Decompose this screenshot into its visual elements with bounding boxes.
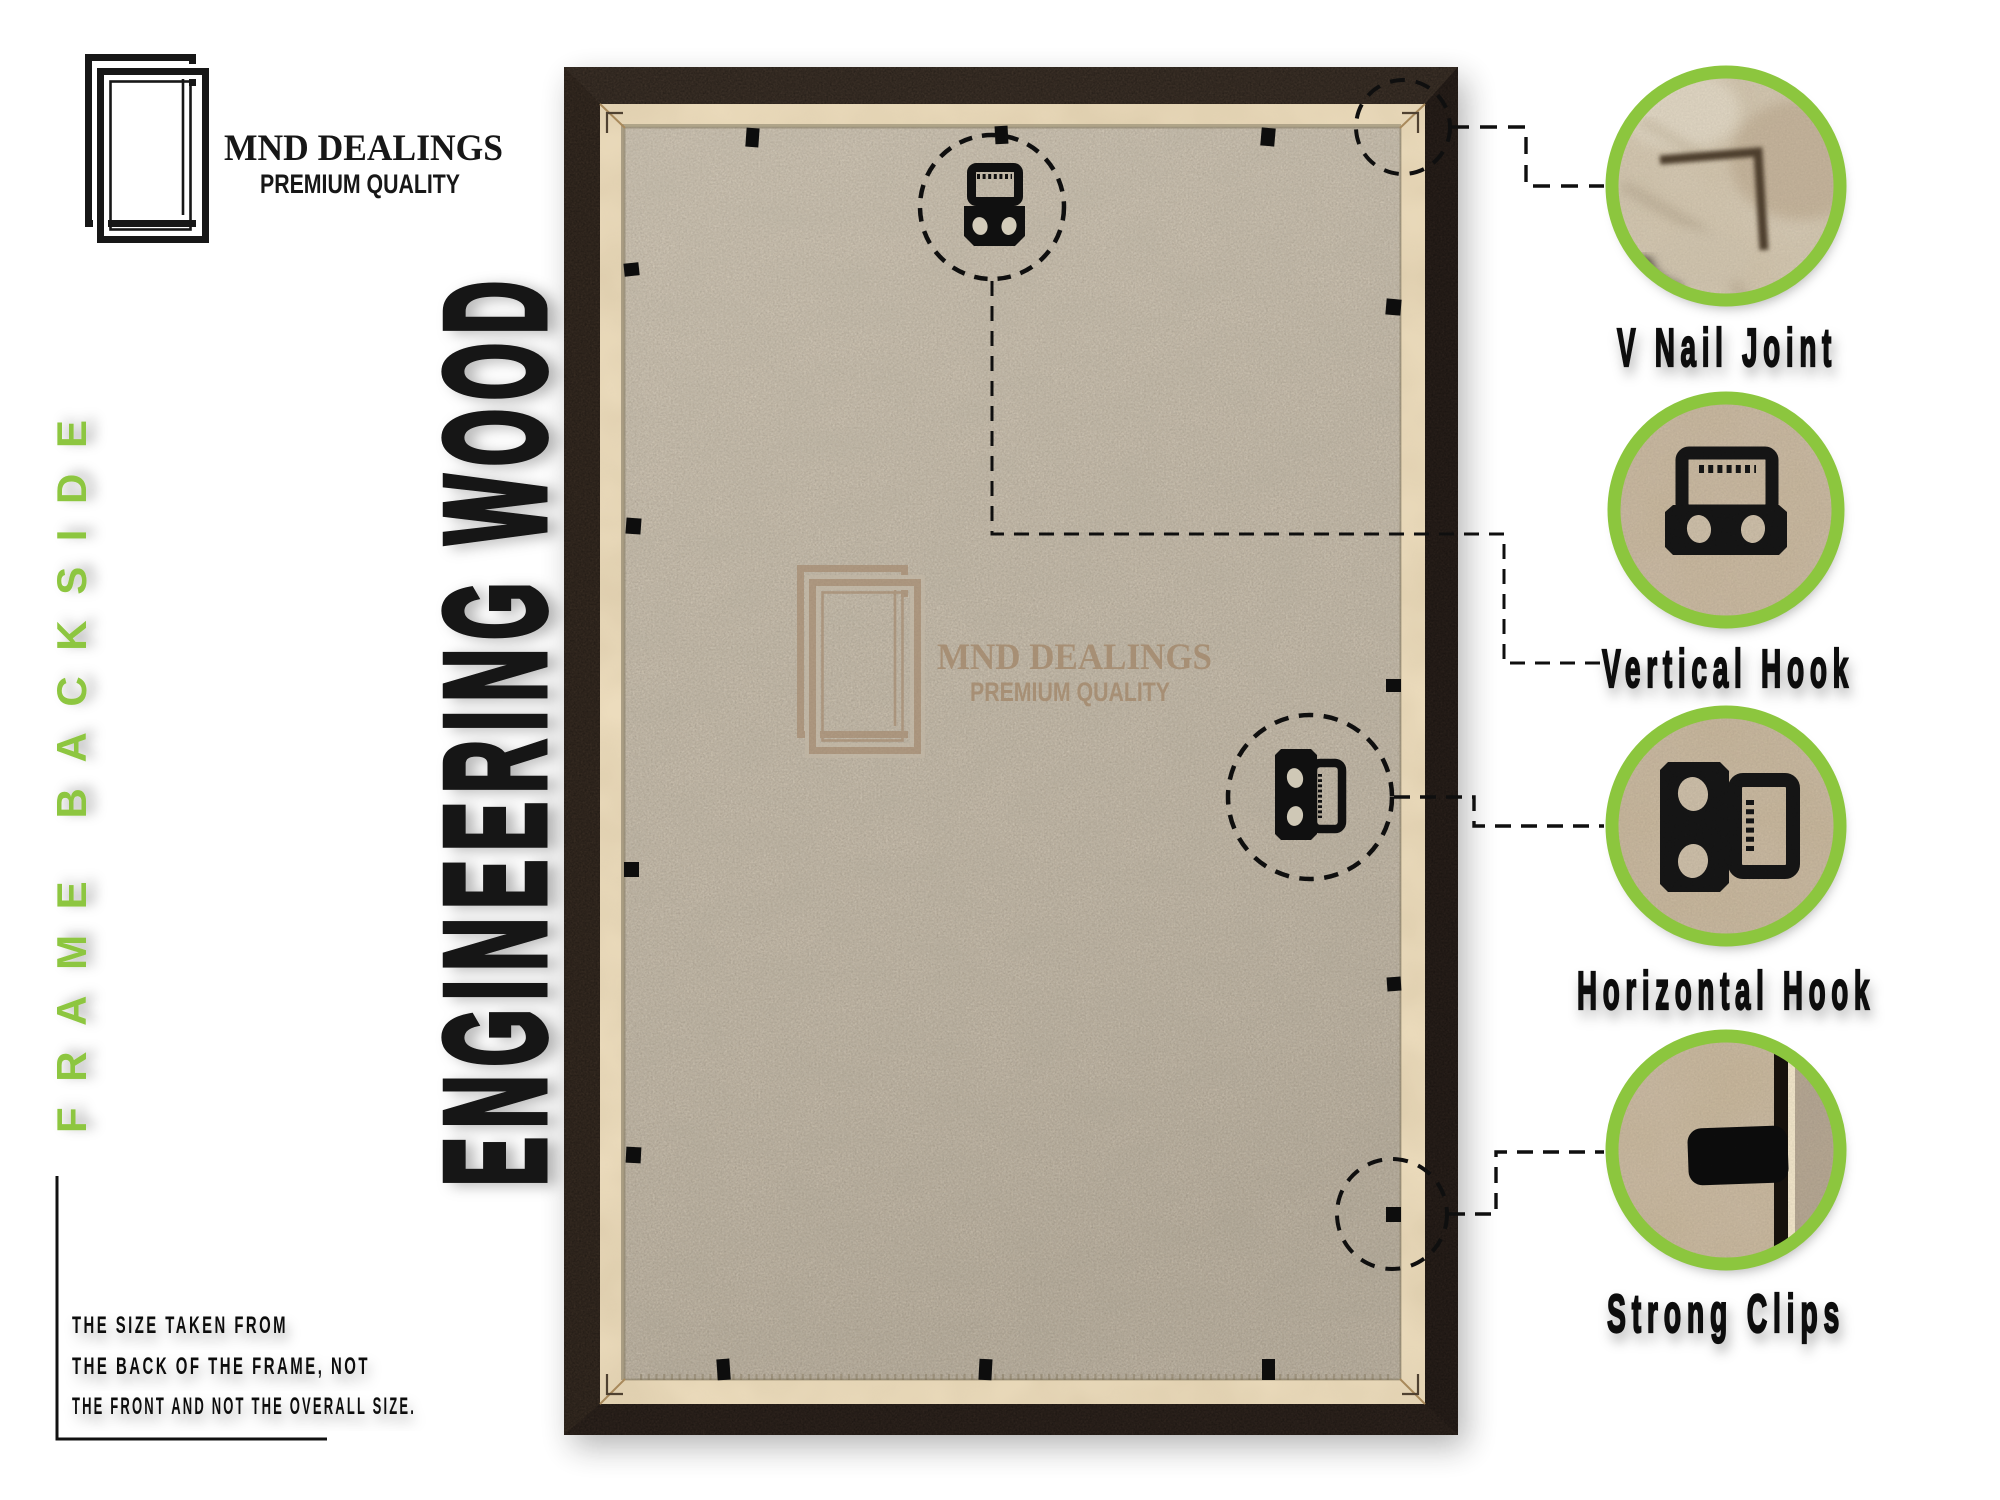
svg-text:THE SIZE TAKEN FROM: THE SIZE TAKEN FROM bbox=[72, 1312, 288, 1339]
svg-text:PREMIUM QUALITY: PREMIUM QUALITY bbox=[260, 169, 460, 199]
svg-text:ENGINEERING WOOD: ENGINEERING WOOD bbox=[416, 272, 575, 1186]
svg-text:THE FRONT AND NOT THE OVERALL: THE FRONT AND NOT THE OVERALL SIZE. bbox=[72, 1393, 416, 1420]
svg-text:Strong Clips: Strong Clips bbox=[1607, 1284, 1845, 1344]
svg-text:MND DEALINGS: MND DEALINGS bbox=[224, 128, 503, 169]
svg-text:MND DEALINGS: MND DEALINGS bbox=[937, 637, 1212, 678]
svg-text:Vertical Hook: Vertical Hook bbox=[1602, 639, 1854, 699]
svg-text:PREMIUM QUALITY: PREMIUM QUALITY bbox=[970, 677, 1170, 707]
svg-text:Horizontal Hook: Horizontal Hook bbox=[1577, 961, 1875, 1021]
svg-text:V Nail Joint: V Nail Joint bbox=[1617, 318, 1837, 378]
svg-text:THE BACK OF THE FRAME, NOT: THE BACK OF THE FRAME, NOT bbox=[72, 1353, 370, 1380]
